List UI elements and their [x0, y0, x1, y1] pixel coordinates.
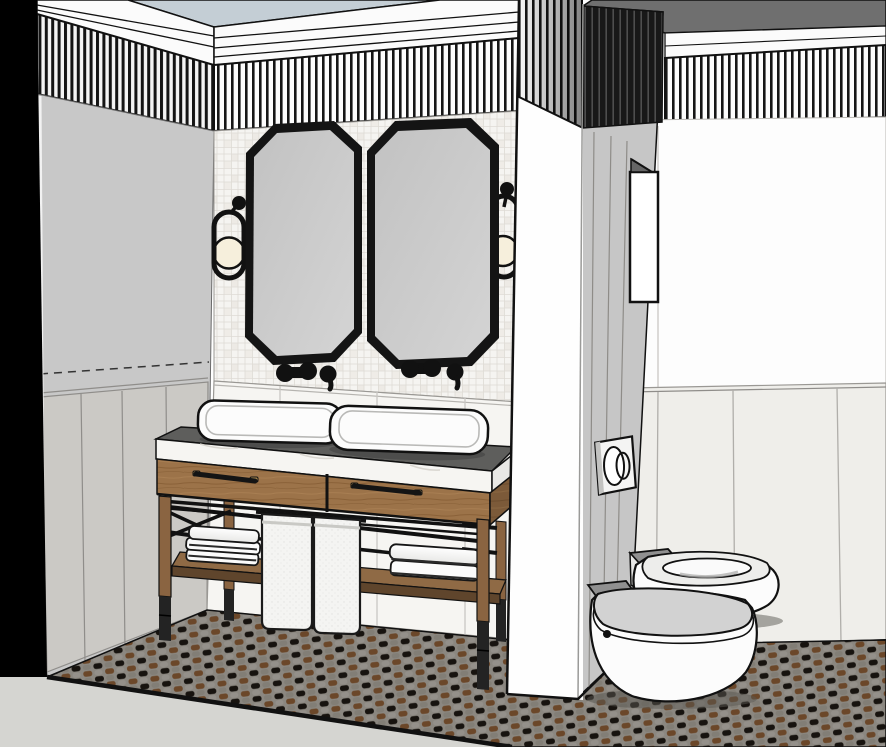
- flush-plate: [595, 436, 636, 494]
- mirror-right: [367, 118, 499, 369]
- bidet-bowl-opening: [663, 559, 751, 578]
- hanging-towels: [256, 512, 366, 634]
- front-left-leg-black: [159, 596, 171, 641]
- mirror-right-glass: [375, 128, 490, 360]
- right-wall-upper: [630, 117, 886, 392]
- faucet-right-handle-b: [423, 359, 441, 377]
- front-right-leg-black: [477, 621, 489, 690]
- front-right-leg-joint: [477, 650, 489, 651]
- partition-niche: [630, 159, 658, 302]
- back-left-leg-black: [224, 589, 234, 621]
- hanging-towel-left: [262, 514, 312, 630]
- front-left-leg-wood: [159, 496, 171, 597]
- sconce-left-cap: [232, 196, 246, 210]
- sconce-left-globe: [214, 238, 245, 269]
- ceiling-and-cornice: [37, 0, 886, 131]
- faucet-left-handle-b: [299, 362, 317, 380]
- left-wall: [37, 94, 214, 677]
- hanging-towel-right: [314, 517, 360, 634]
- front-right-leg-wood: [477, 519, 489, 622]
- right-fluted-band: [665, 45, 886, 126]
- mirror-left-glass: [253, 130, 354, 356]
- mirror-left: [245, 121, 362, 365]
- faucet-left-spout-tip: [330, 380, 331, 389]
- partition-side-fluted-dark: [583, 6, 663, 128]
- towel-stack-right: [388, 544, 480, 581]
- back-right-leg-black: [496, 599, 506, 642]
- toilet-flush-dot: [603, 630, 611, 638]
- front-left-leg-joint: [159, 615, 171, 616]
- faucet-right-spout-tip: [457, 378, 458, 388]
- niche-opening: [630, 172, 658, 302]
- faucet-right-handle-a: [401, 360, 419, 378]
- towel-stack-left: [185, 526, 261, 566]
- sink-right: [329, 405, 489, 462]
- bathroom-render: [0, 0, 886, 747]
- sink-left: [197, 400, 342, 450]
- faucet-left-handle-a: [276, 364, 294, 382]
